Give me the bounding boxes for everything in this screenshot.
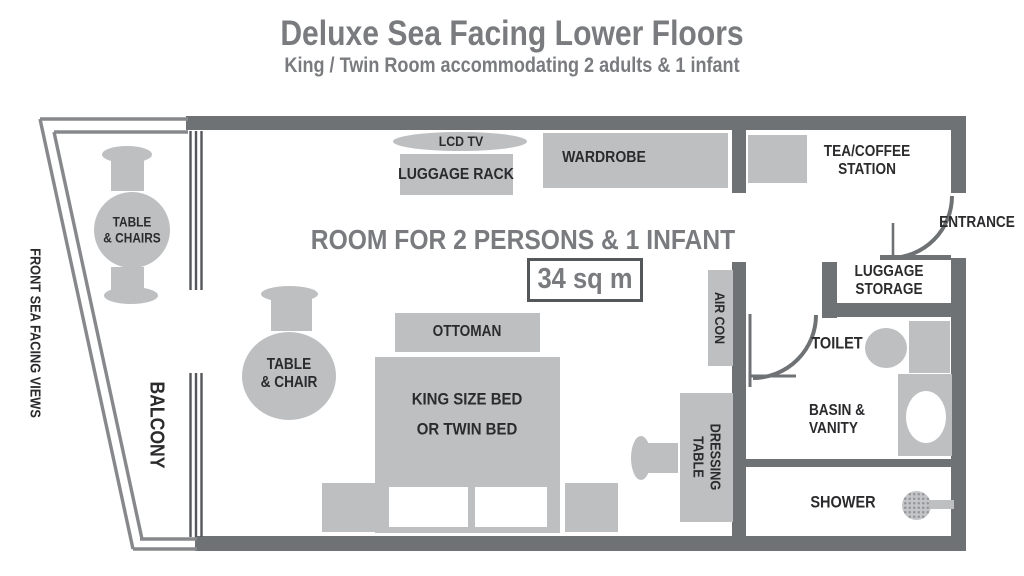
wardrobe-label: WARDROBE <box>562 149 646 167</box>
front-sea-facing-views-label: FRONT SEA FACING VIEWS <box>26 248 43 418</box>
dressing-stool-seat <box>647 443 678 473</box>
wall-luggage-top <box>880 255 951 260</box>
toilet-tank <box>909 321 950 373</box>
wall-interior-lower <box>732 262 746 551</box>
dressing-table-label: DRESSING TABLE <box>689 424 722 491</box>
floor-plan-page: Deluxe Sea Facing Lower Floors King / Tw… <box>0 0 1024 576</box>
basin-vanity-label: BASIN & VANITY <box>809 402 865 438</box>
page-title: Deluxe Sea Facing Lower Floors <box>72 14 953 54</box>
balcony-chair-bottom-back <box>104 287 158 304</box>
tea-coffee-station-unit <box>748 135 807 183</box>
sliding-door <box>191 131 202 537</box>
area-label: 34 sq m <box>537 263 632 296</box>
wall-top <box>186 116 966 130</box>
bed-label: KING SIZE BED OR TWIN BED <box>412 384 523 444</box>
bathroom-door <box>750 314 816 387</box>
luggage-storage-label: LUGGAGE STORAGE <box>855 263 924 299</box>
entrance-label: ENTRANCE <box>939 214 1015 232</box>
toilet-label: TOILET <box>811 335 862 354</box>
room-capacity-label: ROOM FOR 2 PERSONS & 1 INFANT <box>311 224 735 256</box>
wall-interior-upper <box>732 120 746 193</box>
luggage-rack-label: LUGGAGE RACK <box>398 166 514 184</box>
nightstand-right <box>565 483 618 532</box>
room-table-label: TABLE & CHAIR <box>261 356 318 392</box>
page-subtitle: King / Twin Room accommodating 2 adults … <box>72 54 953 78</box>
pillow-right <box>475 487 547 527</box>
shower-head-icon <box>902 491 931 520</box>
nightstand-left <box>322 483 375 532</box>
pillow-left <box>389 487 468 527</box>
room-chair-seat <box>271 296 312 331</box>
wall-bathroom-divider <box>746 459 951 467</box>
balcony-table-label: TABLE & CHAIRS <box>103 214 160 245</box>
wall-bottom <box>195 536 966 551</box>
air-con-label: AIR CON <box>712 292 728 344</box>
balcony-label: BALCONY <box>145 381 168 468</box>
basin <box>906 391 946 443</box>
lcd-tv-label: LCD TV <box>439 133 483 149</box>
shower-arm <box>929 500 954 509</box>
wall-luggage-bottom <box>822 303 952 317</box>
wall-right-upper <box>951 116 966 193</box>
balcony-chair-top-seat <box>111 155 144 191</box>
toilet-bowl <box>865 328 907 368</box>
shower-label: SHOWER <box>810 494 875 513</box>
area-box: 34 sq m <box>527 258 643 302</box>
tea-coffee-station-label: TEA/COFFEE STATION <box>824 143 910 179</box>
ottoman-label: OTTOMAN <box>433 323 502 341</box>
